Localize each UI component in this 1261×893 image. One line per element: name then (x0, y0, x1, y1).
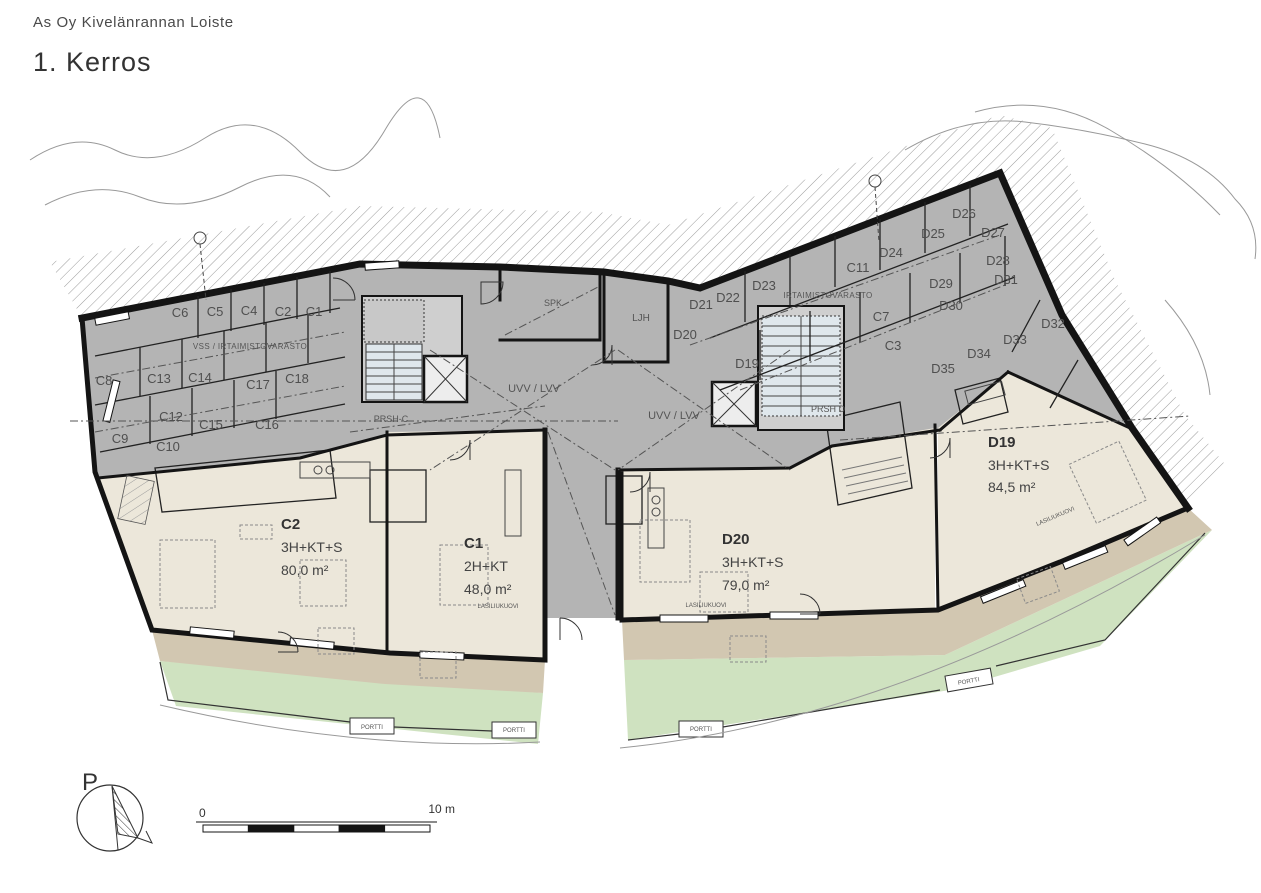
storage-room-label-d35: D35 (931, 361, 955, 376)
storage-room-label-d26: D26 (952, 206, 976, 221)
storage-room-label-c12: C12 (159, 409, 183, 424)
apartment-c2-type: 3H+KT+S (281, 539, 342, 555)
gate-label-2: PORTTI (503, 728, 525, 734)
storage-room-label-c8: C8 (96, 373, 113, 388)
storage-room-label-d23: D23 (752, 278, 776, 293)
storage-room-label-c16: C16 (255, 417, 279, 432)
storage-room-label-c13: C13 (147, 371, 171, 386)
storage-room-label-d22: D22 (716, 290, 740, 305)
stairwell-left (362, 296, 467, 402)
project-title: As Oy Kivelänrannan Loiste (33, 14, 234, 31)
room-label-uvv-left: UVV / LVV (508, 383, 560, 395)
gate-label-3: PORTTI (690, 727, 712, 733)
apartment-d20-type: 3H+KT+S (722, 554, 783, 570)
storage-room-label-c15: C15 (199, 417, 223, 432)
storage-room-label-c11: C11 (847, 260, 870, 275)
room-label-spk: SPK (544, 298, 562, 308)
storage-room-label-c9: C9 (112, 431, 129, 446)
storage-room-label-c14: C14 (188, 370, 212, 385)
room-label-uvv-right: UVV / LVV (648, 410, 700, 422)
compass-circle (77, 785, 143, 851)
storage-room-label-c1: C1 (306, 304, 323, 319)
sliding-door-label-c1: LASILIUKUOVI (477, 604, 518, 610)
apartment-c2-id: C2 (281, 516, 300, 533)
floor-title: 1. Kerros (33, 47, 234, 78)
scale-zero-label: 0 (199, 806, 206, 820)
storage-room-label-d29: D29 (929, 276, 953, 291)
storage-room-label-d20s: D20 (673, 327, 697, 342)
storage-room-label-c5: C5 (207, 304, 224, 319)
storage-room-label-d31: D31 (994, 272, 1018, 287)
storage-room-label-d24: D24 (879, 245, 903, 260)
storage-room-label-c17: C17 (246, 377, 270, 392)
storage-room-label-c18: C18 (285, 371, 309, 386)
sliding-door-label-d20: LASILIUKUOVI (685, 603, 726, 609)
apartment-d19-area: 84,5 m² (988, 479, 1036, 495)
storage-room-label-d33: D33 (1003, 332, 1027, 347)
title-block: As Oy Kivelänrannan Loiste 1. Kerros (33, 14, 234, 78)
storage-room-label-d27: D27 (981, 225, 1005, 240)
storage-room-label-d32: D32 (1041, 316, 1065, 331)
storage-room-label-d34: D34 (967, 346, 991, 361)
scale-bar: 0 10 m (196, 802, 455, 832)
storage-block-left-label: VSS / IRTAIMISTOVARASTO (193, 342, 307, 351)
storage-room-label-d28: D28 (986, 253, 1010, 268)
storage-room-label-c6: C6 (172, 305, 189, 320)
apartment-c1-id: C1 (464, 535, 483, 552)
storage-block-right-label: IRTAIMISTOVARASTO (783, 291, 872, 300)
storage-room-label-c3: C3 (885, 338, 902, 353)
room-label-prsh-d: PRSH D (811, 404, 846, 414)
storage-room-label-d19s: D19 (735, 356, 759, 371)
apartment-c1-type: 2H+KT (464, 558, 508, 574)
storage-room-label-c4: C4 (241, 303, 258, 318)
apartment-d20-area: 79,0 m² (722, 577, 770, 593)
room-label-ljh: LJH (632, 313, 650, 324)
apartment-d20-id: D20 (722, 531, 750, 548)
apartment-d19-id: D19 (988, 434, 1016, 451)
apartment-d19-type: 3H+KT+S (988, 457, 1049, 473)
storage-room-label-d30: D30 (939, 298, 963, 313)
apartment-c1-area: 48,0 m² (464, 581, 512, 597)
scale-bar-segments (203, 825, 430, 832)
gate-label-1: PORTTI (361, 725, 383, 731)
storage-room-label-c2: C2 (275, 304, 292, 319)
storage-room-label-d25: D25 (921, 226, 945, 241)
floor-plan-svg: C6 C5 C4 C2 C1 VSS / IRTAIMISTOVARASTO C… (0, 0, 1261, 888)
storage-room-label-d21: D21 (689, 297, 713, 312)
storage-room-label-c10: C10 (156, 439, 180, 454)
room-label-prsh-c: PRSH-C (374, 414, 409, 424)
scale-end-label: 10 m (428, 802, 455, 816)
compass: P (77, 769, 152, 851)
apartment-c2-area: 80,0 m² (281, 562, 329, 578)
storage-room-label-c7: C7 (873, 309, 890, 324)
